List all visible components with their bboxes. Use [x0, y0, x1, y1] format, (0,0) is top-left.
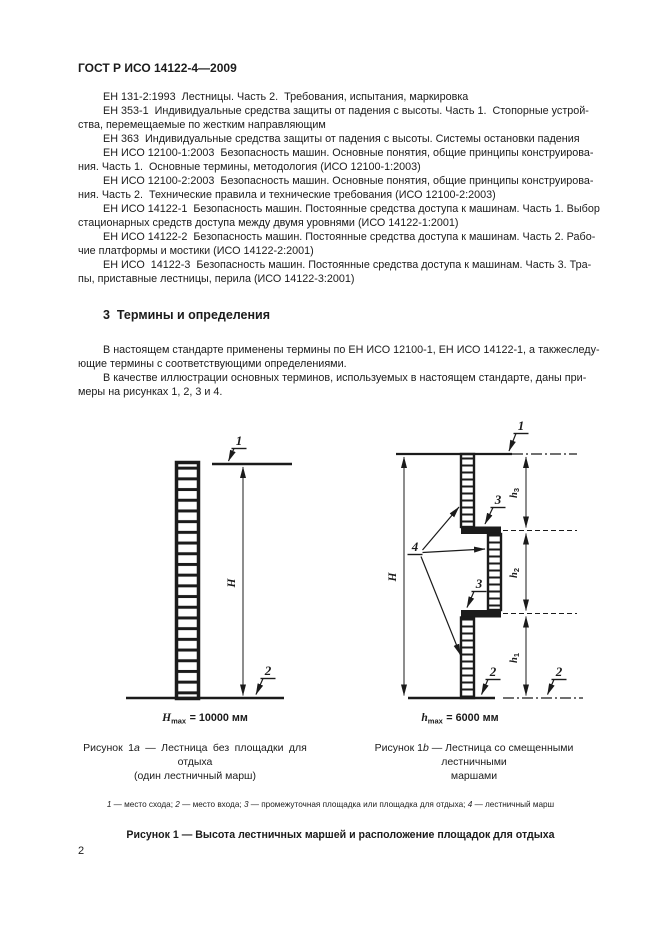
- callout-3-label: 3: [475, 576, 483, 591]
- reference-line: стационарных средств доступа между двумя…: [78, 216, 598, 230]
- callout-2-left: 2: [482, 664, 501, 695]
- paragraph-line: В настоящем стандарте применены термины …: [78, 343, 598, 357]
- callout-4-arrow-middle-flight: [423, 549, 486, 553]
- terms-paragraphs: В настоящем стандарте применены термины …: [78, 343, 598, 399]
- figure-1b: H h3 h2 h1 1 3: [387, 420, 583, 726]
- callout-4-arrow-top-flight: [423, 507, 460, 550]
- dim-label-H-1a: H: [226, 577, 238, 588]
- reference-line: ЕН ИСО 14122-2 Безопасность машин. Посто…: [78, 230, 598, 244]
- legend-item-text: — промежуточная площадка или площадка дл…: [249, 800, 468, 809]
- reference-line: чие платформы и мостики (ИСО 14122-2:200…: [78, 244, 598, 258]
- figure-1b-caption: Рисунок 1b — Лестница со смещенными лест…: [350, 741, 598, 783]
- ladder-flight-middle: [488, 534, 501, 610]
- legend-item: 2 — место входа;: [175, 800, 244, 809]
- figure-1b-caption-line1: Рисунок 1b — Лестница со смещенными лест…: [350, 741, 598, 769]
- callout-3-leader: [467, 592, 474, 608]
- legend-item-text: — место входа;: [180, 800, 244, 809]
- document-page: ГОСТ Р ИСО 14122-4—2009 ЕН 131-2:1993 Ле…: [0, 0, 661, 936]
- callout-4-label: 4: [411, 539, 419, 554]
- page-header: ГОСТ Р ИСО 14122-4—2009: [78, 61, 237, 75]
- paragraph-line: меры на рисунках 1, 2, 3 и 4.: [78, 385, 598, 399]
- figure-1a-caption-line1: Рисунок 1a — Лестница без площадки для о…: [66, 741, 324, 769]
- dim-label-h2: h2: [509, 568, 521, 578]
- figure-legend: 1 — место схода; 2 — место входа; 3 — пр…: [0, 799, 661, 811]
- callout-3-label: 3: [494, 492, 502, 507]
- reference-line: ЕН ИСО 14122-1 Безопасность машин. Посто…: [78, 202, 598, 216]
- legend-item: 3 — промежуточная площадка или площадка …: [244, 800, 468, 809]
- callout-3-upper: 3: [485, 492, 506, 524]
- callout-1-leader: [509, 434, 516, 452]
- callout-2-right: 2: [548, 664, 567, 695]
- legend-item: 1 — место схода;: [107, 800, 175, 809]
- legend-item-text: — место схода;: [111, 800, 175, 809]
- figure-1a-caption-line2: (один лестничный марш): [66, 769, 324, 783]
- reference-line: пы, приставные лестницы, перила (ИСО 141…: [78, 272, 598, 286]
- reference-line: ЕН 353-1 Индивидуальные средства защиты …: [78, 104, 598, 118]
- callout-2-label: 2: [555, 664, 563, 679]
- callout-2-label: 2: [264, 663, 272, 678]
- callout-1-fig1b: 1: [509, 420, 529, 451]
- legend-item-text: — лестничный марш: [472, 800, 554, 809]
- dim-label-h1: h1: [509, 653, 521, 663]
- section-heading: 3 Термины и определения: [103, 308, 270, 322]
- formula-Hmax: Hmax= 10000 мм: [161, 712, 248, 726]
- reference-line: ЕН ИСО 12100-1:2003 Безопасность машин. …: [78, 146, 598, 160]
- callout-4-arrow-bottom-flight: [421, 557, 461, 656]
- ladder-flight-top: [461, 454, 474, 527]
- reference-line: ния. Часть 1. Основные термины, методоло…: [78, 160, 598, 174]
- callout-1-label: 1: [518, 420, 525, 433]
- callout-3-leader: [485, 508, 493, 525]
- reference-line: ния. Часть 2. Технические правила и техн…: [78, 188, 598, 202]
- dim-label-h3: h3: [509, 488, 521, 498]
- callout-2-leader: [548, 680, 555, 695]
- figure-1a-caption: Рисунок 1a — Лестница без площадки для о…: [66, 741, 324, 783]
- callout-2-fig1a: 2: [256, 663, 276, 695]
- callout-1-leader: [229, 449, 235, 462]
- references-block: ЕН 131-2:1993 Лестницы. Часть 2. Требова…: [78, 90, 598, 286]
- callout-2-leader: [256, 679, 263, 695]
- callout-2-label: 2: [489, 664, 497, 679]
- page-number: 2: [78, 845, 84, 857]
- callout-1-label: 1: [236, 433, 243, 448]
- paragraph-line: ющие термины с соответствующими определе…: [78, 357, 598, 371]
- figure-1-drawing: H 1 2 Hmax= 10000 мм: [0, 420, 661, 740]
- reference-line: ЕН ИСО 14122-3 Безопасность машин. Посто…: [78, 258, 598, 272]
- reference-line: ЕН 363 Индивидуальные средства защиты от…: [78, 132, 598, 146]
- ladder-1a: [177, 463, 199, 699]
- formula-hmax: hmax= 6000 мм: [421, 712, 498, 726]
- dim-label-H-1b: H: [387, 571, 399, 582]
- figure-1b-caption-line2: маршами: [350, 769, 598, 783]
- reference-line: ЕН ИСО 12100-2:2003 Безопасность машин. …: [78, 174, 598, 188]
- legend-item: 4 — лестничный марш: [468, 800, 554, 809]
- reference-line: ЕН 131-2:1993 Лестницы. Часть 2. Требова…: [78, 90, 598, 104]
- figure-1-main-caption: Рисунок 1 — Высота лестничных маршей и р…: [10, 829, 661, 841]
- ladder-flight-bottom: [461, 618, 474, 699]
- figure-1a: H 1 2 Hmax= 10000 мм: [126, 433, 292, 726]
- callout-3-lower: 3: [467, 576, 487, 608]
- paragraph-line: В качестве иллюстрации основных терминов…: [78, 371, 598, 385]
- callout-2-leader: [482, 680, 489, 695]
- reference-line: ства, перемещаемые по жестким направляющ…: [78, 118, 598, 132]
- callout-1-fig1a: 1: [229, 433, 247, 461]
